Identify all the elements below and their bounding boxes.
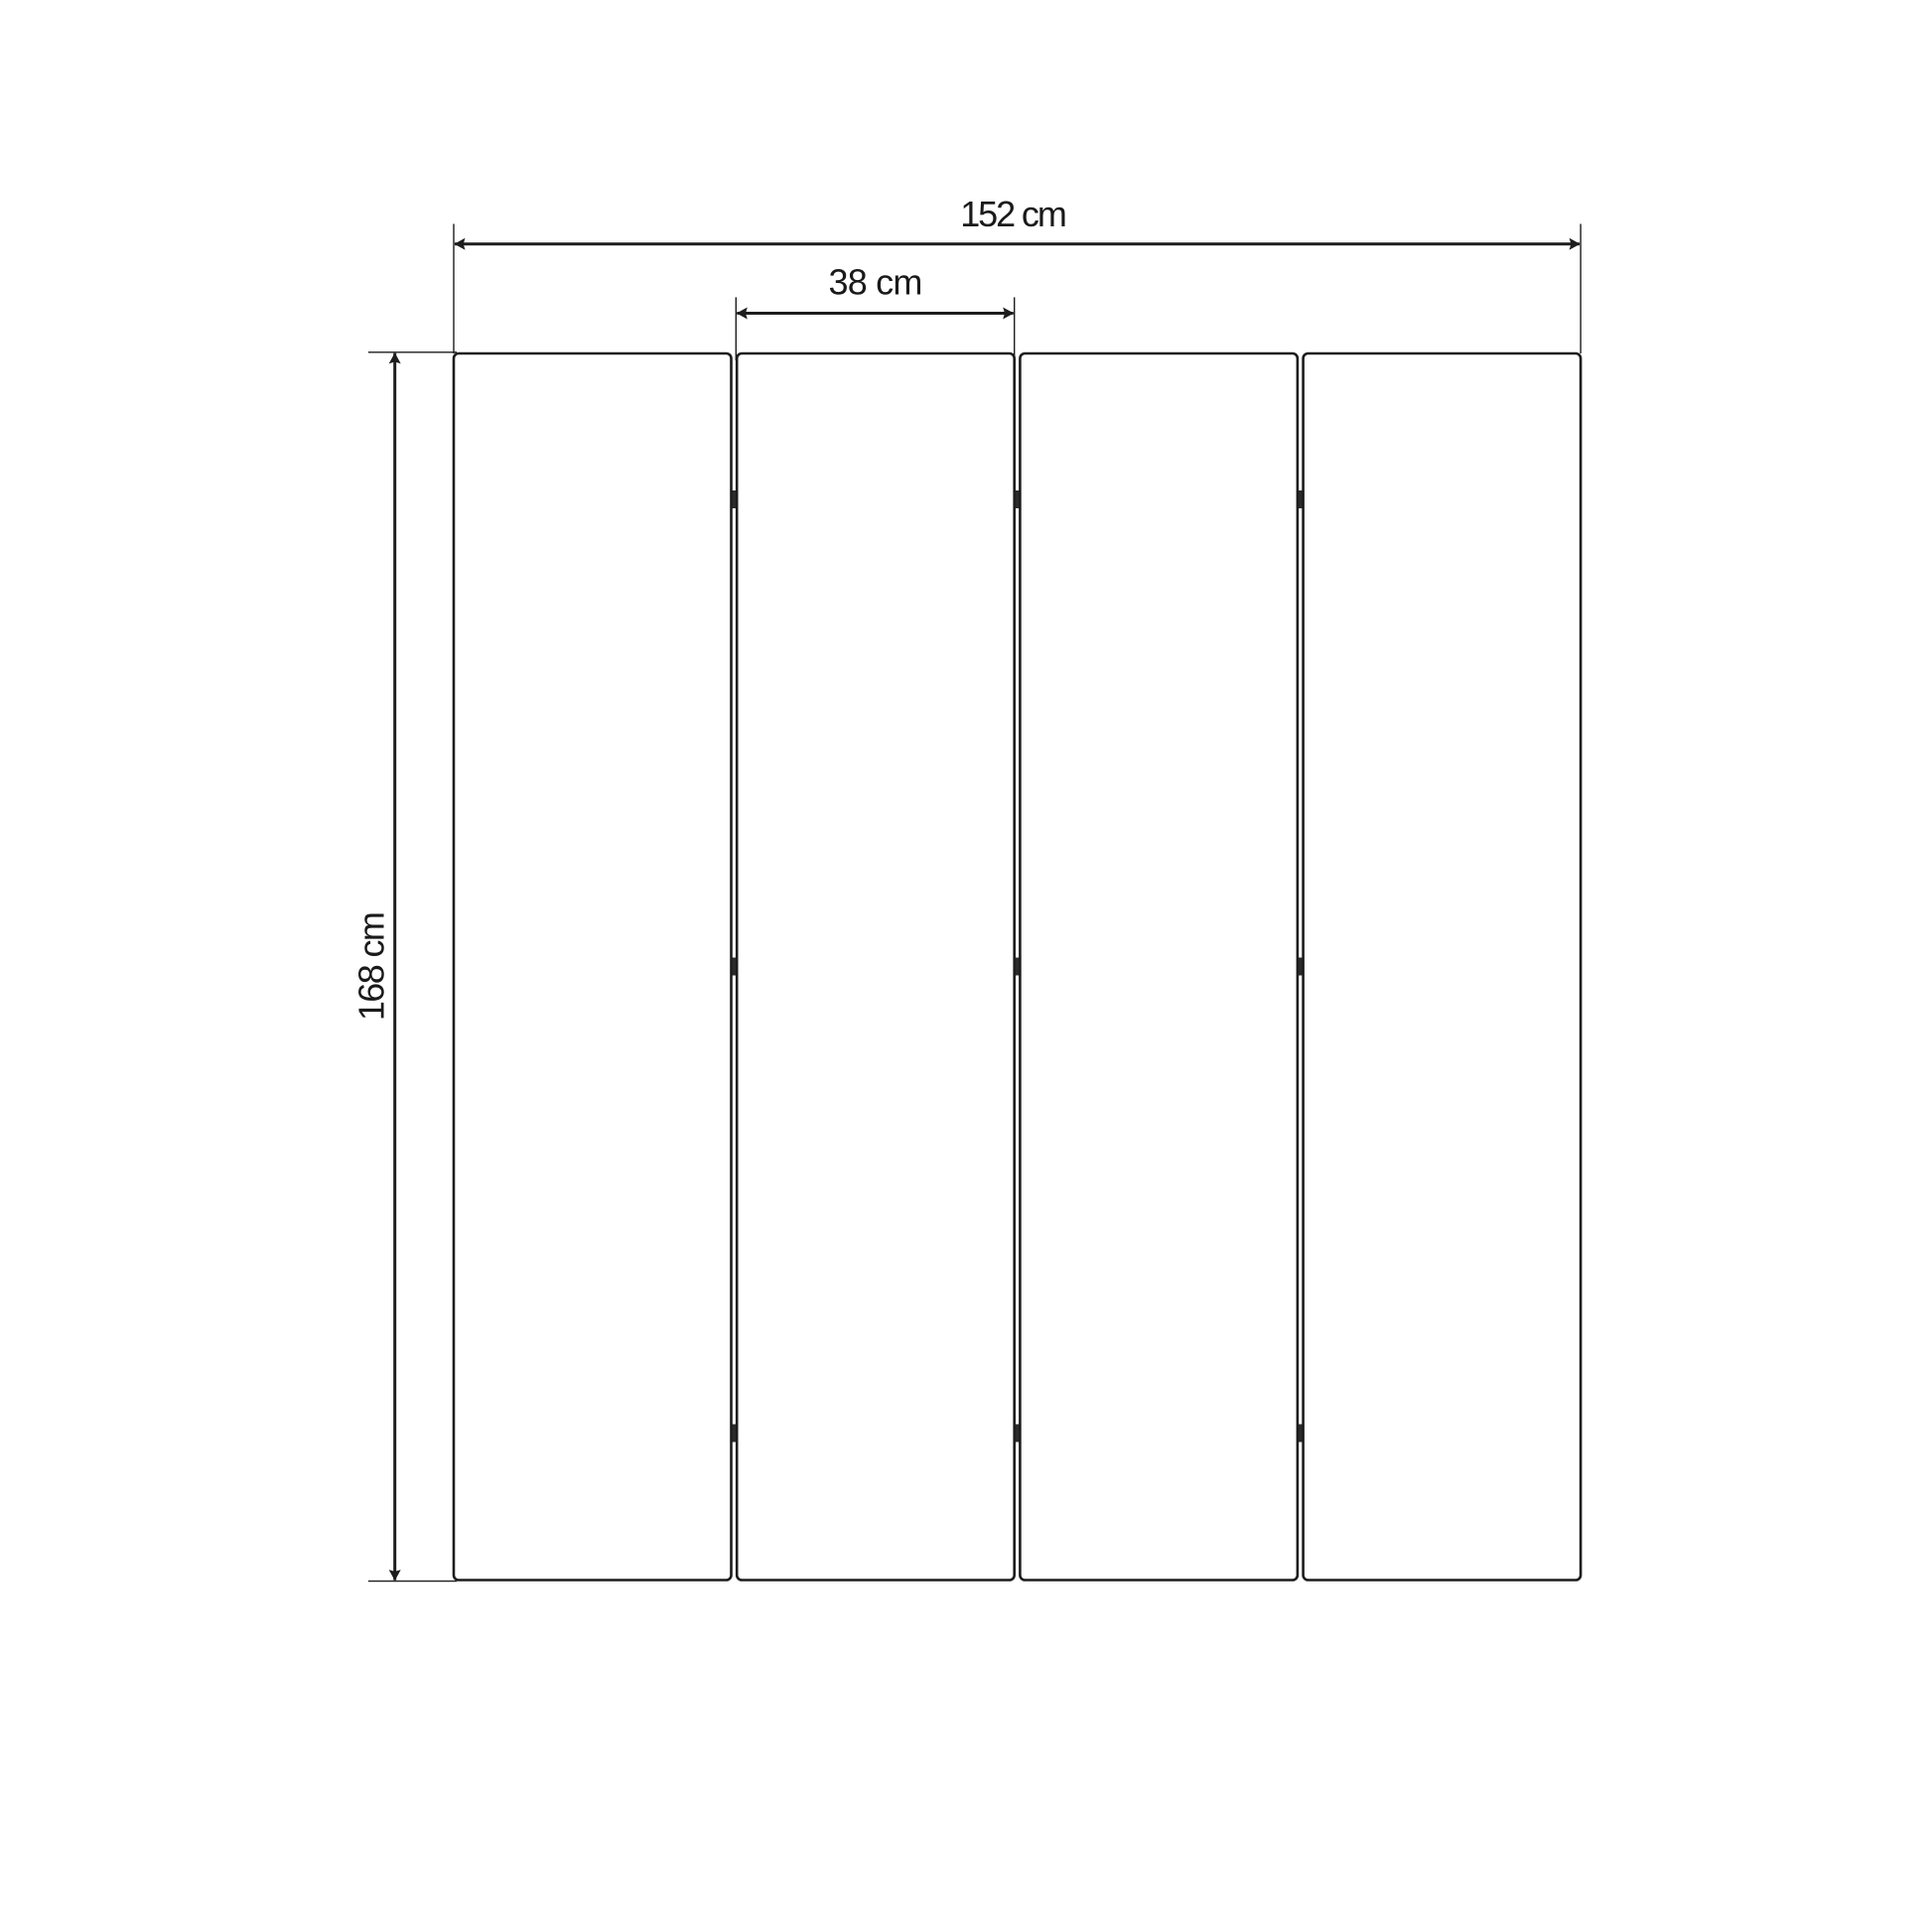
- svg-text:168 cm: 168 cm: [350, 913, 391, 1021]
- svg-text:38 cm: 38 cm: [828, 261, 921, 302]
- svg-text:152 cm: 152 cm: [960, 194, 1065, 234]
